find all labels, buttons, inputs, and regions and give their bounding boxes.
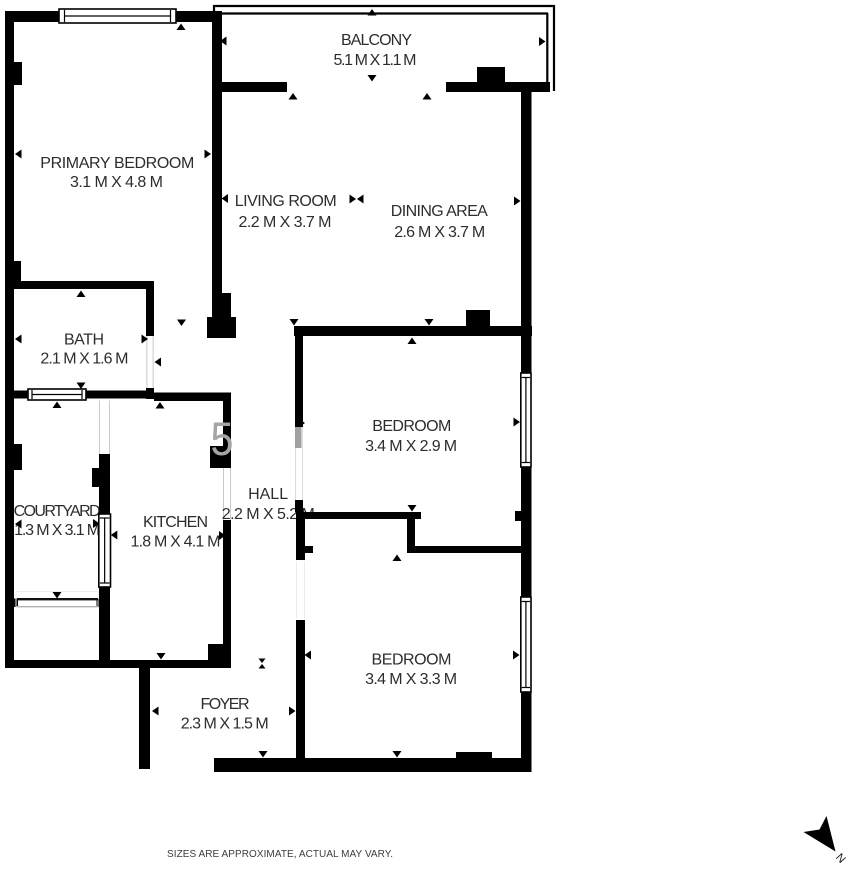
svg-text:BATH: BATH	[64, 332, 104, 349]
svg-text:2.6 M X 3.7 M: 2.6 M X 3.7 M	[394, 224, 485, 241]
svg-text:1.3 M X 3.1 M: 1.3 M X 3.1 M	[14, 522, 100, 539]
svg-text:SIZES ARE APPROXIMATE, ACTUAL: SIZES ARE APPROXIMATE, ACTUAL MAY VARY.	[167, 849, 393, 860]
svg-text:DINING AREA: DINING AREA	[391, 203, 488, 220]
svg-text:FOYER: FOYER	[201, 696, 250, 713]
svg-text:PRIMARY BEDROOM: PRIMARY BEDROOM	[40, 155, 194, 172]
svg-text:BEDROOM: BEDROOM	[372, 651, 452, 668]
svg-text:2.3 M X 1.5 M: 2.3 M X 1.5 M	[181, 715, 269, 732]
svg-text:BALCONY: BALCONY	[341, 32, 412, 49]
svg-text:BEDROOM: BEDROOM	[372, 418, 451, 435]
svg-text:5.1 M X 1.1 M: 5.1 M X 1.1 M	[334, 52, 417, 69]
svg-text:3.4 M X 2.9 M: 3.4 M X 2.9 M	[365, 438, 457, 455]
svg-text:3.4 M X 3.3 M: 3.4 M X 3.3 M	[365, 671, 457, 688]
svg-text:5: 5	[211, 412, 234, 465]
svg-text:COURTYARD: COURTYARD	[14, 503, 101, 520]
svg-text:KITCHEN: KITCHEN	[143, 514, 208, 531]
svg-text:1.8 M X 4.1 M: 1.8 M X 4.1 M	[131, 534, 221, 551]
svg-text:LIVING ROOM: LIVING ROOM	[235, 193, 337, 210]
svg-text:2.2 M X 3.7 M: 2.2 M X 3.7 M	[239, 214, 332, 231]
svg-text:2.1 M X 1.6 M: 2.1 M X 1.6 M	[40, 351, 128, 368]
svg-text:HALL: HALL	[248, 486, 288, 503]
svg-text:3.1 M X 4.8 M: 3.1 M X 4.8 M	[70, 174, 163, 191]
